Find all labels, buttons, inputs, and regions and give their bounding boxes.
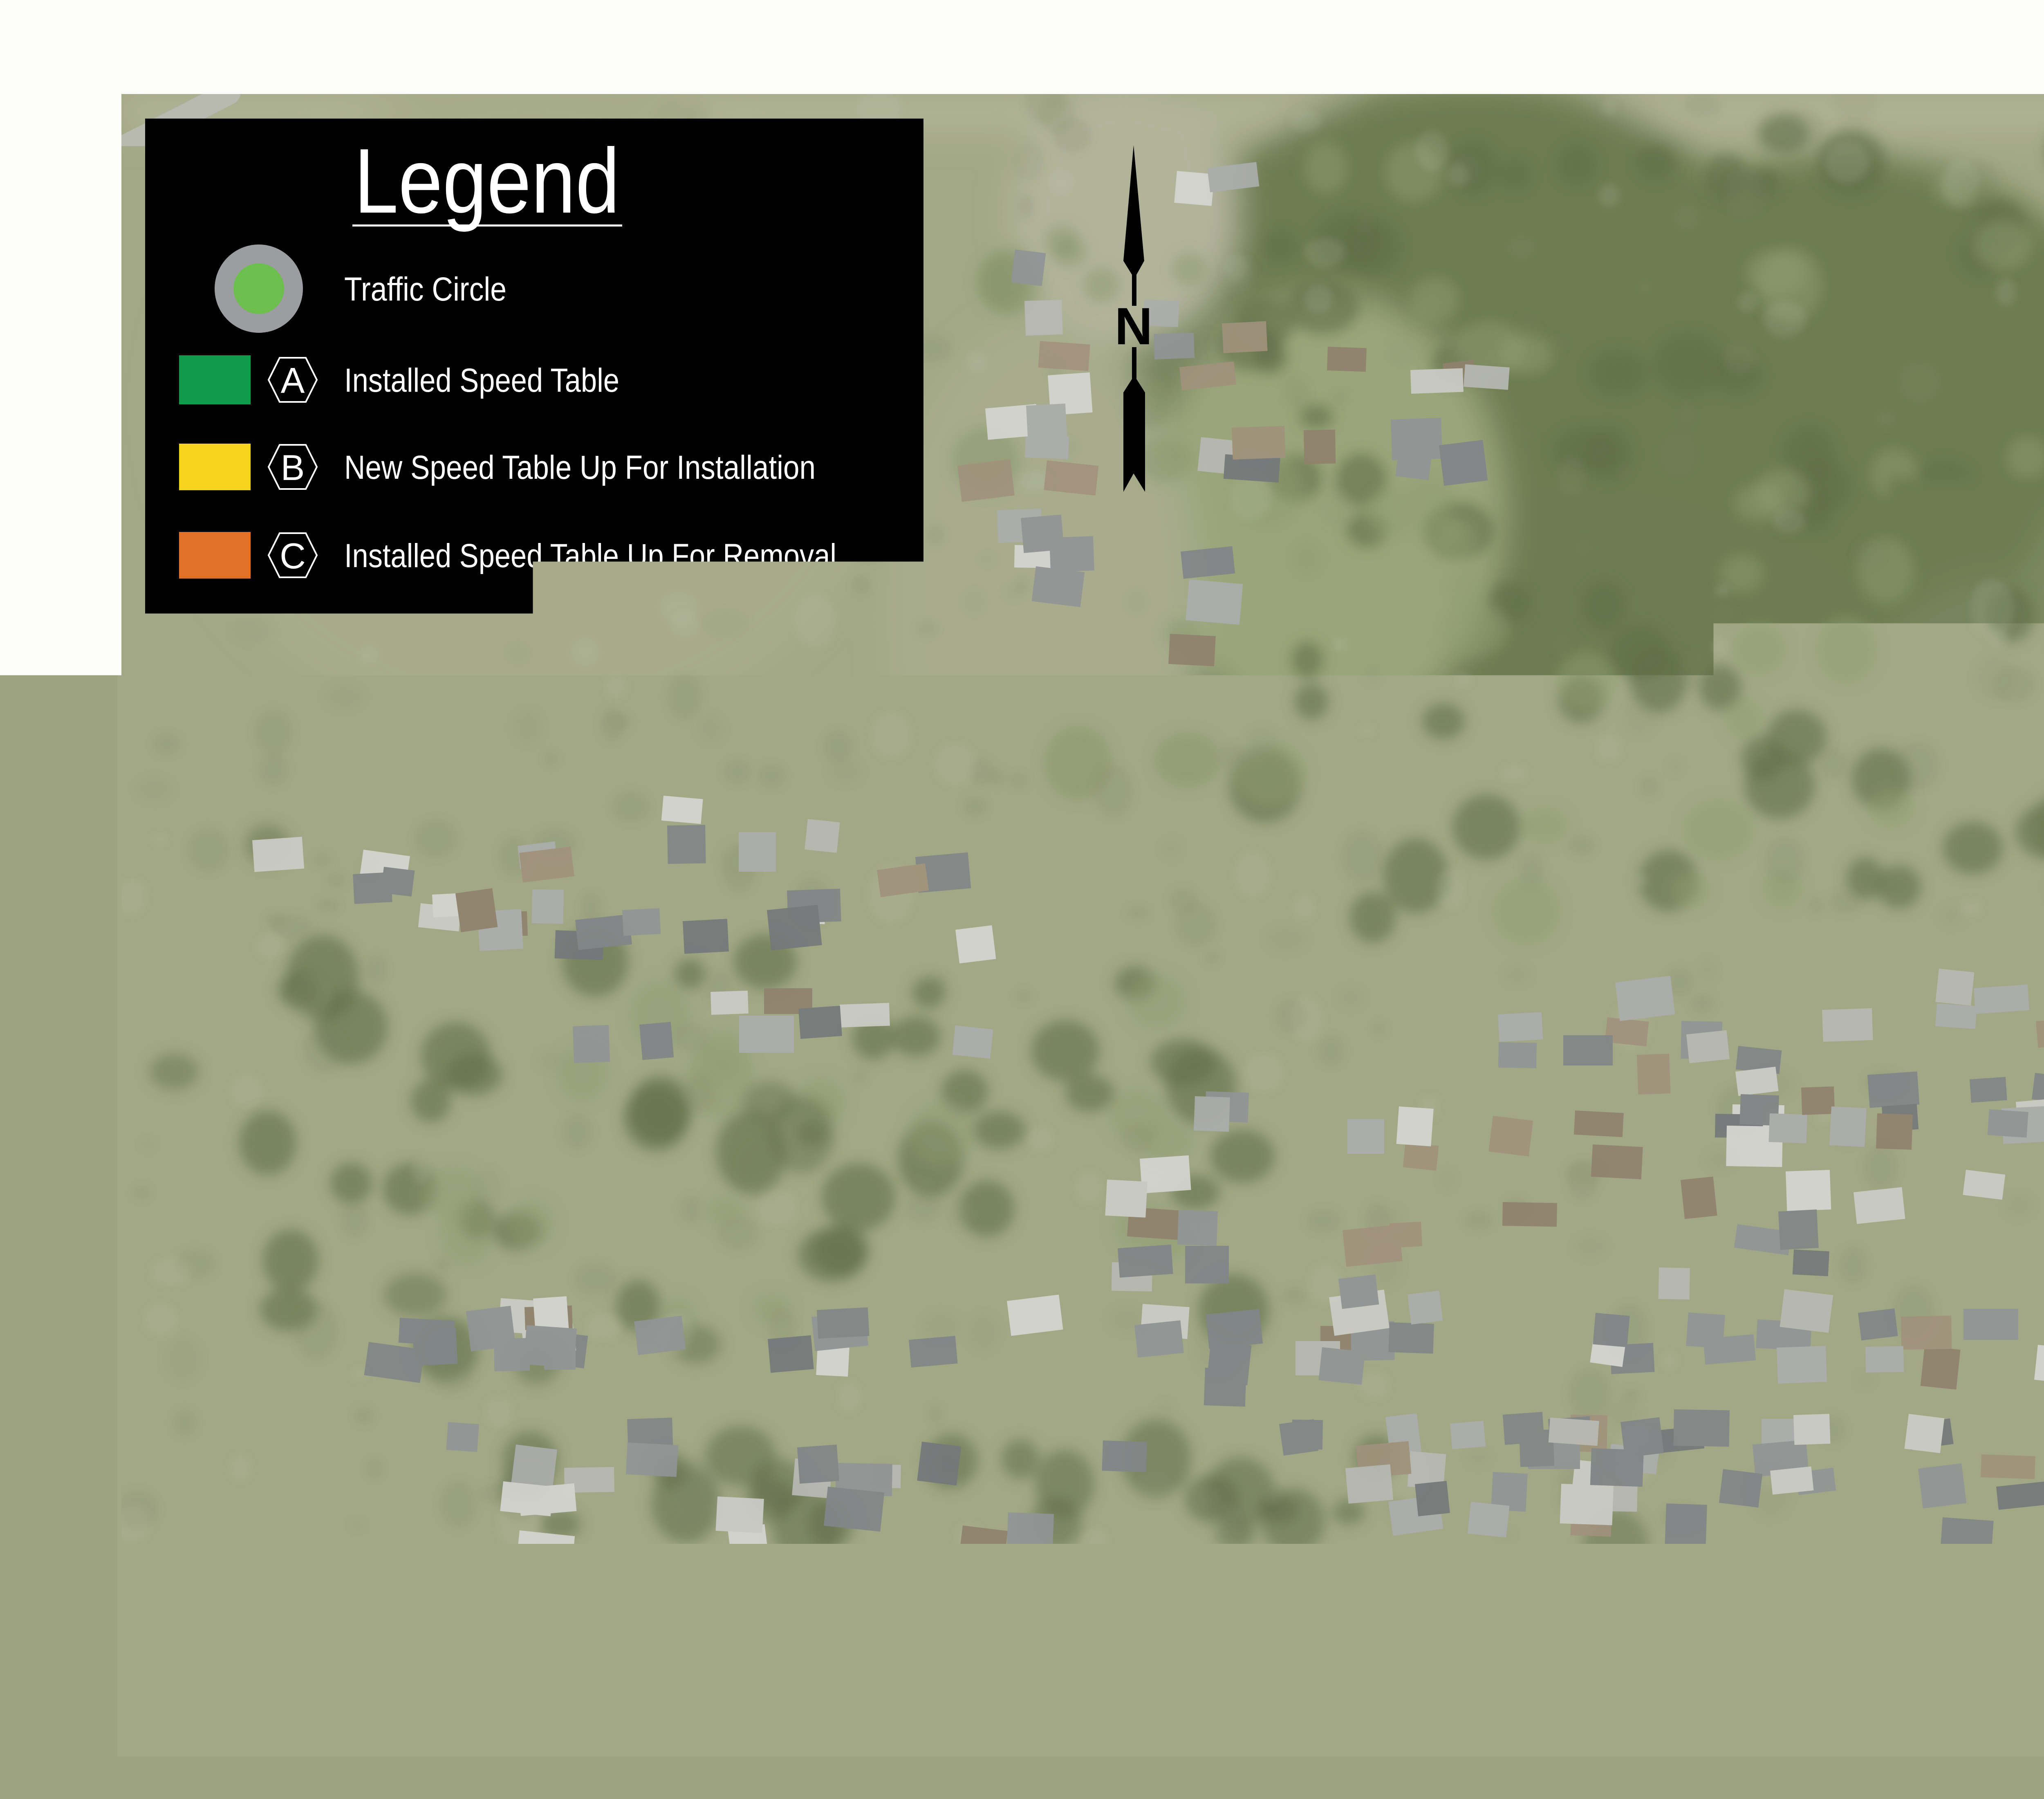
svg-text:Installed Speed Table Up For R: Installed Speed Table Up For Removal [344,537,836,574]
svg-text:Installed Speed Table: Installed Speed Table [344,362,619,399]
svg-text:A: A [281,360,305,401]
svg-text:New Speed Table Up For Install: New Speed Table Up For Installation [344,449,816,486]
svg-text:55TH AVE NE: 55TH AVE NE [278,1153,302,1270]
svg-text:EST.: EST. [158,1666,185,1679]
svg-text:61ST DR NE: 61ST DR NE [1733,1173,1757,1296]
svg-text:Stop Sign: Stop Sign [344,713,464,750]
svg-text:A: A [653,1187,696,1257]
svg-text:B: B [281,447,305,488]
svg-text:Installed Raised Crosswalk To: Installed Raised Crosswalk To Be Removed [344,626,896,663]
svg-text:C: C [280,536,306,576]
svg-text:C: C [502,1016,547,1086]
svg-text:Traffic Calming Devices, Speed: Traffic Calming Devices, Speed Tables On… [824,1584,1955,1658]
svg-text:60TH DR NE: 60TH DR NE [1601,1409,1625,1543]
svg-text:70TH ST NE: 70TH ST NE [1727,1355,1840,1379]
svg-text:57TH DR NE: 57TH DR NE [906,1255,930,1375]
svg-text:MARYSVILLE: MARYSVILLE [117,1698,298,1745]
svg-text:Traffic Circle: Traffic Circle [344,271,507,308]
svg-text:N: N [1115,297,1152,356]
svg-text:WASHINGTON: WASHINGTON [159,1741,257,1756]
svg-text:D: D [280,624,306,664]
svg-text:59TH DR NE: 59TH DR NE [1371,1133,1394,1254]
svg-text:70TH ST NE: 70TH ST NE [632,1387,747,1411]
svg-text:1891: 1891 [239,1666,267,1679]
svg-text:Legend: Legend [354,129,620,232]
svg-text:B: B [1149,1460,1191,1531]
svg-text:58TH DR NE: 58TH DR NE [1135,1170,1159,1296]
